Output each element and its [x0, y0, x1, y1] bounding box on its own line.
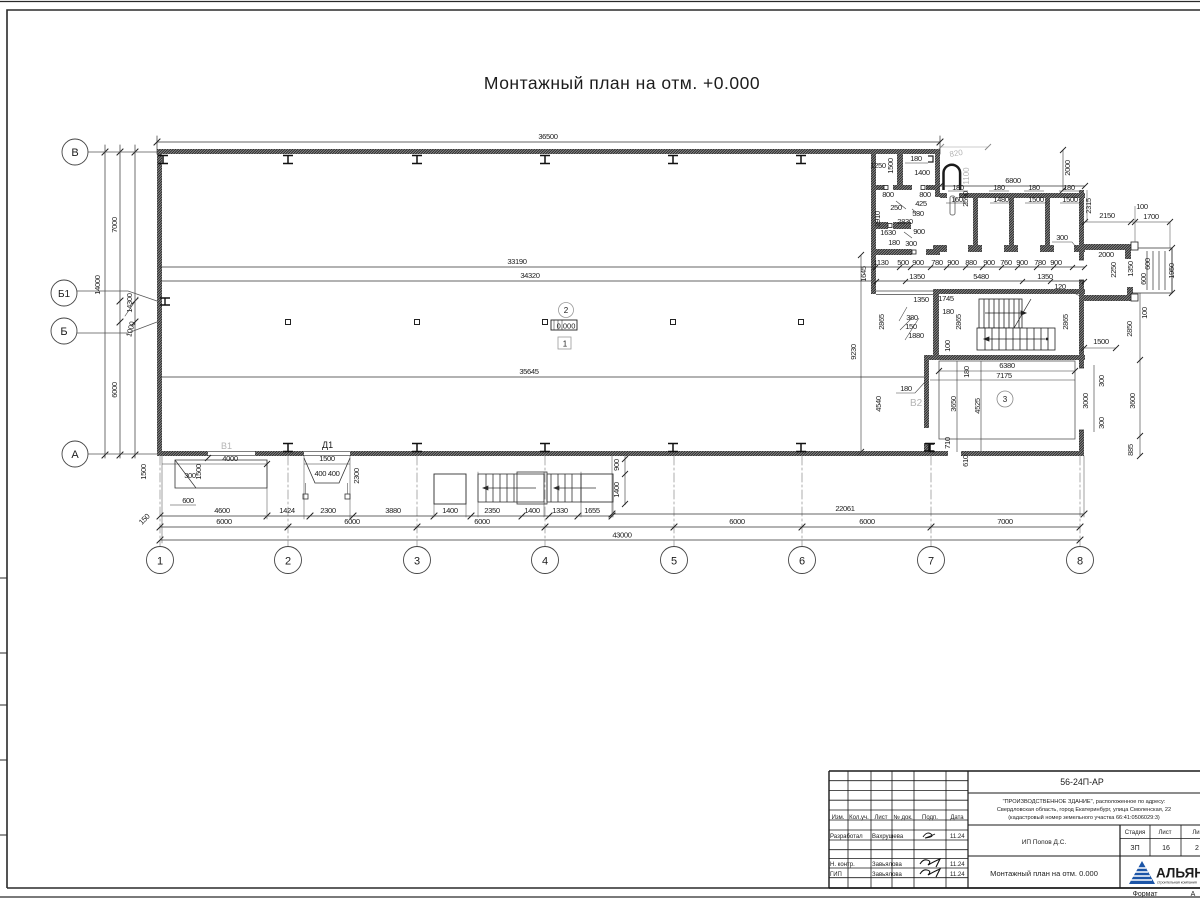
svg-text:5480: 5480 [973, 272, 989, 281]
svg-text:Вахрушева: Вахрушева [872, 834, 904, 840]
svg-text:1480: 1480 [993, 195, 1009, 204]
svg-text:А: А [1191, 891, 1196, 898]
svg-text:А: А [71, 449, 79, 461]
svg-text:6000: 6000 [474, 517, 490, 526]
svg-text:8: 8 [1077, 556, 1083, 568]
svg-text:11.24: 11.24 [950, 872, 965, 878]
svg-text:885: 885 [1126, 444, 1135, 456]
svg-text:710: 710 [943, 437, 952, 449]
svg-text:1400: 1400 [914, 168, 930, 177]
svg-text:Лист: Лист [874, 815, 887, 821]
svg-text:1500: 1500 [1093, 337, 1109, 346]
svg-text:5: 5 [671, 556, 677, 568]
svg-text:300: 300 [905, 239, 917, 248]
svg-text:№ док.: № док. [893, 814, 913, 821]
svg-text:16: 16 [1162, 845, 1170, 852]
svg-text:1500: 1500 [194, 464, 203, 480]
svg-text:180: 180 [952, 183, 964, 192]
svg-text:1745: 1745 [938, 294, 954, 303]
svg-text:900: 900 [912, 258, 924, 267]
svg-text:ГИП: ГИП [830, 872, 842, 878]
svg-text:"ПРОИЗВОДСТВЕННОЕ ЗДАНИЕ", рас: "ПРОИЗВОДСТВЕННОЕ ЗДАНИЕ", расположенное… [1003, 799, 1166, 805]
svg-text:7175: 7175 [996, 371, 1012, 380]
svg-text:1500: 1500 [319, 454, 335, 463]
svg-text:Завьялова: Завьялова [872, 862, 903, 868]
svg-text:2: 2 [285, 556, 291, 568]
svg-text:3: 3 [414, 556, 420, 568]
svg-text:7000: 7000 [997, 517, 1013, 526]
svg-text:180: 180 [1063, 183, 1075, 192]
svg-text:3: 3 [1003, 395, 1008, 404]
svg-text:425: 425 [915, 199, 927, 208]
svg-text:Монтажный план на отм. 0.000: Монтажный план на отм. 0.000 [990, 869, 1098, 878]
svg-text:6000: 6000 [729, 517, 745, 526]
svg-text:180: 180 [900, 384, 912, 393]
svg-text:Кол.уч.: Кол.уч. [849, 815, 869, 821]
svg-text:6000: 6000 [344, 517, 360, 526]
svg-text:180: 180 [1028, 183, 1040, 192]
svg-text:120: 120 [1054, 282, 1066, 291]
svg-text:1130: 1130 [874, 258, 889, 267]
svg-text:1350: 1350 [909, 272, 925, 281]
svg-text:33190: 33190 [507, 257, 526, 266]
svg-text:6000: 6000 [859, 517, 875, 526]
svg-text:2865: 2865 [1061, 314, 1070, 330]
svg-text:строительная компания: строительная компания [1157, 881, 1197, 885]
svg-text:Монтажный план на отм. +0.000: Монтажный план на отм. +0.000 [484, 73, 760, 93]
svg-text:Дата: Дата [950, 815, 964, 821]
svg-text:2: 2 [564, 306, 569, 315]
svg-text:300: 300 [1097, 375, 1106, 387]
svg-text:180: 180 [942, 307, 954, 316]
svg-text:3650: 3650 [949, 396, 958, 412]
svg-text:Лист: Лист [1158, 830, 1171, 836]
svg-text:2865: 2865 [954, 314, 963, 330]
svg-text:900: 900 [913, 227, 925, 236]
svg-text:1950: 1950 [1167, 263, 1176, 279]
svg-text:7: 7 [928, 556, 934, 568]
svg-text:2000: 2000 [1098, 250, 1114, 259]
svg-text:1: 1 [563, 340, 568, 349]
svg-text:В: В [71, 147, 78, 159]
svg-text:180: 180 [962, 366, 971, 378]
svg-text:Д1: Д1 [322, 440, 333, 450]
svg-text:35645: 35645 [519, 367, 538, 376]
svg-text:Формат: Формат [1133, 891, 1159, 898]
svg-text:Б: Б [60, 326, 67, 338]
svg-text:1100: 1100 [962, 167, 971, 185]
svg-text:600: 600 [1143, 258, 1152, 270]
svg-text:4600: 4600 [214, 506, 230, 515]
svg-text:1424: 1424 [279, 506, 295, 515]
svg-text:2000: 2000 [1063, 160, 1072, 176]
svg-text:1350: 1350 [1126, 261, 1135, 277]
svg-text:780: 780 [931, 258, 943, 267]
svg-text:1400: 1400 [612, 482, 621, 498]
svg-text:800: 800 [882, 190, 894, 199]
svg-text:3600: 3600 [1128, 393, 1137, 409]
svg-text:600: 600 [182, 496, 194, 505]
svg-text:Разработал: Разработал [830, 834, 863, 840]
svg-text:1330: 1330 [552, 506, 568, 515]
svg-text:9230: 9230 [849, 344, 858, 360]
svg-text:1500: 1500 [1028, 195, 1044, 204]
svg-text:1500: 1500 [1062, 195, 1078, 204]
svg-text:3000: 3000 [1081, 393, 1090, 409]
svg-text:11.24: 11.24 [950, 862, 965, 868]
svg-text:Стадия: Стадия [1125, 830, 1145, 836]
svg-text:2850: 2850 [1125, 321, 1134, 337]
svg-text:100: 100 [1140, 307, 1149, 319]
svg-text:300: 300 [1097, 417, 1106, 429]
svg-text:1400: 1400 [524, 506, 540, 515]
svg-text:6380: 6380 [999, 361, 1015, 370]
svg-text:180: 180 [993, 183, 1005, 192]
svg-text:6000: 6000 [216, 517, 232, 526]
svg-text:6: 6 [799, 556, 805, 568]
svg-text:500: 500 [897, 258, 909, 267]
svg-text:1655: 1655 [584, 506, 600, 515]
svg-text:56-24П-АР: 56-24П-АР [1060, 777, 1104, 787]
svg-text:180: 180 [888, 238, 900, 247]
svg-text:34320: 34320 [520, 271, 539, 280]
svg-text:1645: 1645 [859, 266, 868, 282]
svg-text:2865: 2865 [877, 314, 886, 330]
svg-text:4: 4 [542, 556, 548, 568]
svg-text:11.24: 11.24 [950, 834, 965, 840]
svg-text:0.000: 0.000 [557, 322, 576, 331]
svg-text:АЛЬЯНС: АЛЬЯНС [1156, 866, 1200, 881]
svg-text:2300: 2300 [320, 506, 336, 515]
svg-text:6000: 6000 [110, 382, 119, 398]
svg-text:22061: 22061 [835, 504, 854, 513]
svg-text:900: 900 [612, 459, 621, 471]
svg-text:43000: 43000 [612, 531, 631, 540]
svg-text:1880: 1880 [908, 331, 924, 340]
svg-text:2350: 2350 [484, 506, 500, 515]
svg-text:1: 1 [157, 556, 163, 568]
svg-text:800: 800 [919, 190, 931, 199]
svg-text:900: 900 [983, 258, 995, 267]
svg-text:600: 600 [1139, 273, 1148, 285]
svg-text:1400: 1400 [442, 506, 458, 515]
svg-text:4540: 4540 [874, 396, 883, 412]
svg-text:380: 380 [906, 313, 918, 322]
svg-text:2150: 2150 [1099, 211, 1115, 220]
svg-text:ЗП: ЗП [1130, 845, 1139, 852]
svg-text:14000: 14000 [93, 275, 102, 294]
svg-text:2300: 2300 [352, 468, 361, 484]
svg-text:ИП Попов Д.С.: ИП Попов Д.С. [1022, 839, 1067, 846]
svg-text:Изм.: Изм. [832, 815, 845, 821]
svg-text:900: 900 [947, 258, 959, 267]
svg-text:900: 900 [1016, 258, 1028, 267]
svg-text:36500: 36500 [538, 132, 557, 141]
svg-text:1500: 1500 [139, 464, 148, 480]
svg-text:6800: 6800 [1005, 176, 1021, 185]
svg-text:7000: 7000 [110, 217, 119, 233]
svg-text:Ли: Ли [1192, 830, 1199, 836]
svg-text:180: 180 [910, 154, 922, 163]
svg-text:2910: 2910 [873, 211, 882, 227]
svg-text:1250: 1250 [870, 161, 886, 170]
svg-text:4000: 4000 [222, 454, 238, 463]
svg-text:Подп.: Подп. [922, 815, 938, 821]
svg-text:1350: 1350 [913, 295, 929, 304]
svg-text:(кадастровый номер земельного: (кадастровый номер земельного участка 66… [1008, 814, 1160, 821]
svg-text:2590: 2590 [961, 191, 970, 207]
svg-text:100: 100 [943, 340, 952, 352]
svg-text:Свердловская область, город Ек: Свердловская область, город Екатеринбург… [997, 807, 1171, 813]
svg-text:400 400: 400 400 [315, 469, 340, 478]
svg-text:610: 610 [961, 455, 970, 467]
svg-text:3880: 3880 [385, 506, 401, 515]
svg-text:2315: 2315 [1084, 198, 1093, 214]
svg-text:780: 780 [1034, 258, 1046, 267]
svg-text:1350: 1350 [1037, 272, 1053, 281]
svg-text:Завьялова: Завьялова [872, 872, 903, 878]
svg-text:В1: В1 [221, 441, 232, 451]
svg-text:1500: 1500 [886, 158, 895, 174]
svg-text:Б1: Б1 [58, 289, 71, 300]
svg-text:880: 880 [965, 258, 977, 267]
svg-text:Н. контр.: Н. контр. [830, 862, 855, 868]
svg-text:900: 900 [1050, 258, 1062, 267]
svg-text:2: 2 [1195, 845, 1199, 852]
svg-text:1700: 1700 [1143, 212, 1159, 221]
svg-text:2830: 2830 [897, 217, 913, 226]
svg-text:1630: 1630 [880, 228, 896, 237]
svg-text:760: 760 [1000, 258, 1012, 267]
svg-text:100: 100 [1136, 202, 1148, 211]
svg-text:300: 300 [1056, 233, 1068, 242]
svg-text:В2: В2 [910, 398, 923, 409]
svg-text:2250: 2250 [1109, 262, 1118, 278]
svg-text:4525: 4525 [973, 398, 982, 414]
